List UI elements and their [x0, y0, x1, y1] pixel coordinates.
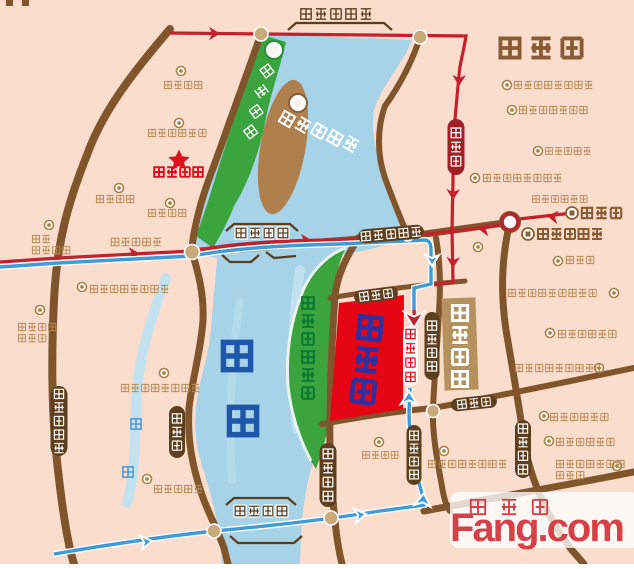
svg-text:Fang.com: Fang.com [450, 506, 623, 550]
